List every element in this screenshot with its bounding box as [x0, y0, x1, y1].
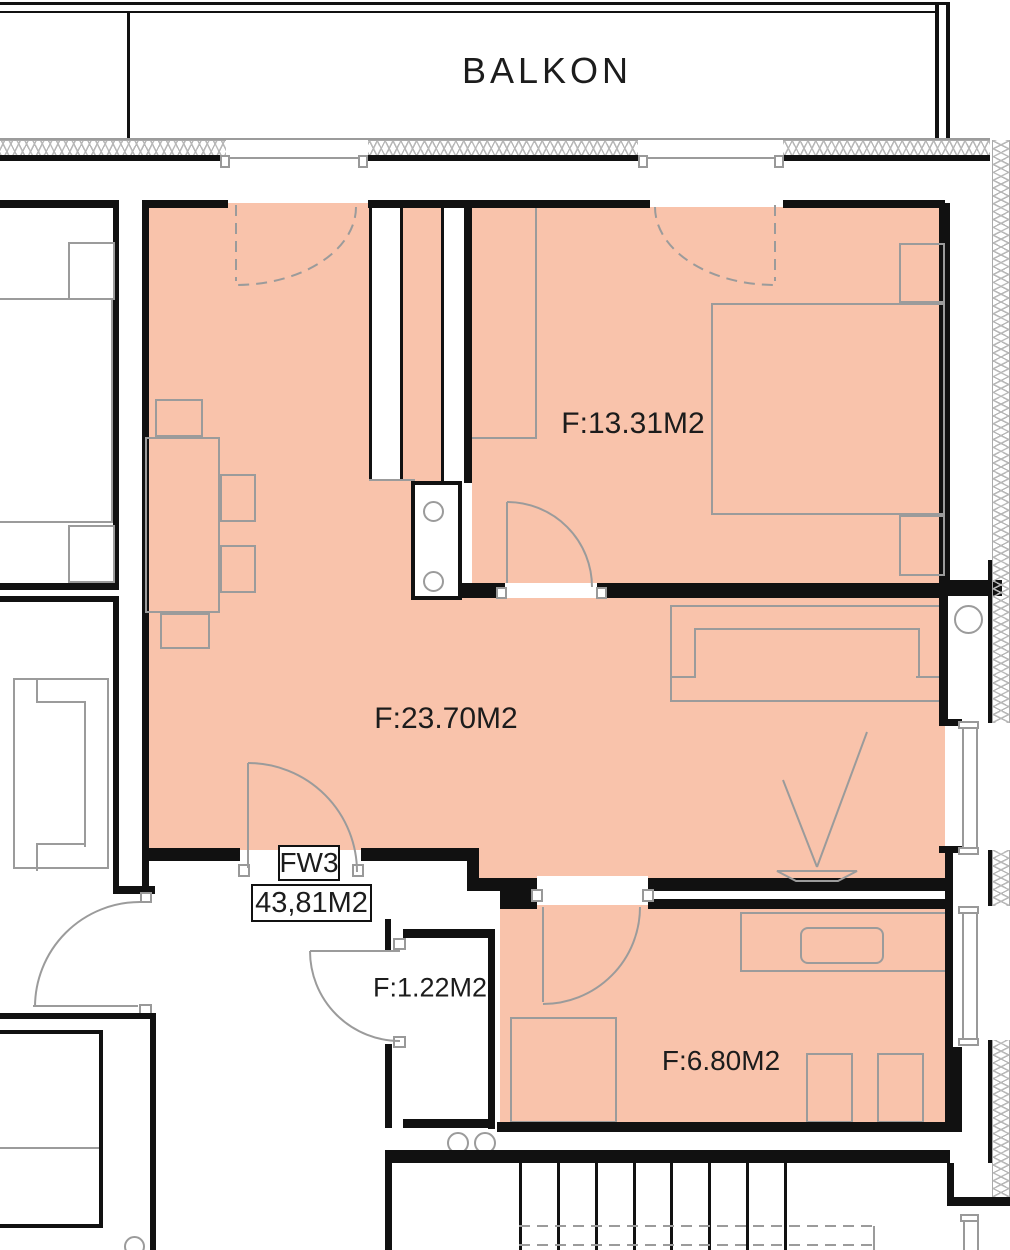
balcony-door-arc: [236, 207, 356, 285]
door-arc: [543, 907, 640, 1004]
apartment-id-badge: FW3: [278, 845, 340, 881]
bedroom-area-label: F:13.31M2: [561, 407, 704, 441]
apartment-total-area: 43,81M2: [255, 887, 368, 920]
plant-symbol: [783, 732, 867, 867]
closet-area-label: F:1.22M2: [373, 973, 487, 1004]
plant-dish: [777, 871, 857, 881]
balcony-door-arc: [655, 207, 775, 285]
door-arc: [35, 902, 140, 1007]
line-art-layer: [0, 0, 1010, 1250]
balcony-label: BALKON: [462, 50, 632, 92]
small-room-area-label: F:6.80M2: [662, 1045, 780, 1077]
living-room-area-label: F:23.70M2: [374, 702, 517, 736]
apartment-total-area-badge: 43,81M2: [251, 884, 372, 922]
door-arc: [507, 502, 592, 587]
floor-plan: BALKON F:13.31M2 F:23.70M2 F:1.22M2 F:6.…: [0, 0, 1010, 1250]
apartment-id: FW3: [279, 847, 338, 879]
